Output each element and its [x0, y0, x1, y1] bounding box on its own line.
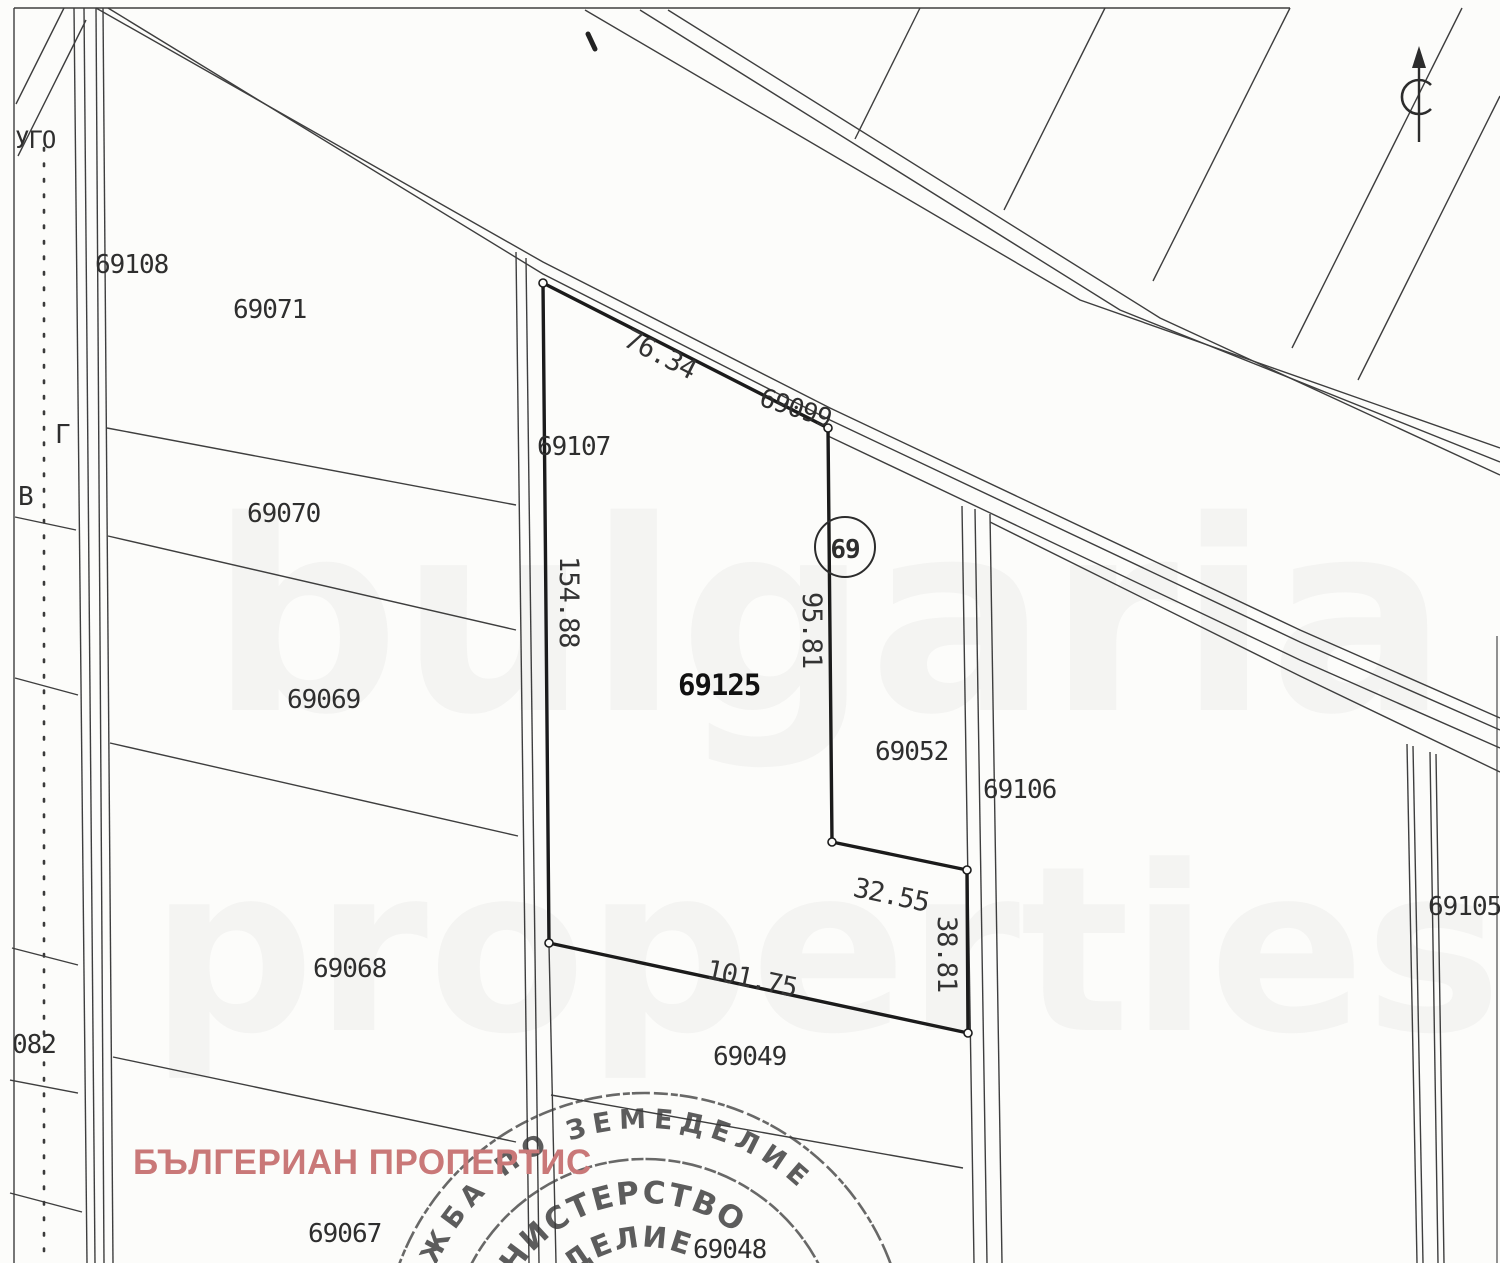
parcel-label-69108: 69108 — [95, 250, 168, 280]
dimension-lowerright-3881: 38.81 — [931, 916, 962, 992]
road-69108-line4 — [103, 8, 113, 1263]
vertex-point-5 — [964, 1029, 972, 1037]
map-canvas: bulgaria properties — [0, 0, 1500, 1263]
parcel-label-69106: 69106 — [983, 775, 1056, 805]
vertex-point-6 — [545, 939, 553, 947]
strip-line-2 — [1004, 8, 1105, 210]
left-strip-boundary-4 — [10, 1080, 78, 1093]
vertex-point-1 — [539, 279, 547, 287]
parcel-label-69071: 69071 — [233, 295, 306, 325]
agency-watermark: БЪЛГЕРИАН ПРОПЕРТИС — [133, 1143, 592, 1182]
strip-line-5 — [1358, 96, 1500, 380]
north-arrow-c-glyph — [1402, 80, 1431, 114]
left-strip-boundary-5 — [10, 1193, 82, 1212]
upper-road-line1 — [585, 10, 1500, 448]
parcel-label-69052: 69052 — [875, 737, 948, 767]
strip-line-1 — [855, 8, 920, 139]
strip-stub-1 — [16, 8, 64, 104]
parcel-label-69125: 69125 — [678, 668, 760, 702]
parcel-label-ugo: УГО — [15, 126, 56, 154]
road-69108-line3 — [96, 8, 104, 1263]
dimension-right-9581: 95.81 — [796, 592, 827, 668]
plot-circle-number: 69 — [830, 535, 859, 565]
parcel-label-69107: 69107 — [537, 432, 610, 462]
strip-line-4 — [1292, 8, 1462, 348]
parcel-label-69070: 69070 — [247, 499, 320, 529]
vertex-point-3 — [828, 838, 836, 846]
parcel-label-69048: 69048 — [693, 1235, 766, 1263]
vertex-point-4 — [963, 866, 971, 874]
parcel-label-69049: 69049 — [713, 1042, 786, 1072]
north-arrow-icon — [1402, 46, 1431, 142]
parcel-label-69105: 69105 — [1428, 892, 1500, 922]
parcel-label-69068: 69068 — [313, 954, 386, 984]
parcel-label-g: Г — [55, 420, 70, 450]
cadastral-map-scan: bulgaria properties — [0, 0, 1500, 1263]
strip-line-3 — [1153, 8, 1290, 281]
background-watermark-line2: properties — [150, 818, 1500, 1085]
parcel-label-b: В — [18, 482, 33, 512]
parcel-label-69069: 69069 — [287, 685, 360, 715]
north-arrow-head — [1412, 46, 1426, 68]
left-strip-boundary-1 — [15, 517, 76, 530]
parcel-label-69067: 69067 — [308, 1219, 381, 1249]
dimension-left-15488: 154.88 — [553, 556, 584, 648]
scan-tick-mark — [588, 34, 595, 49]
left-strip-boundary-2 — [15, 678, 78, 695]
parcel-label-082: 082 — [12, 1030, 56, 1060]
background-watermark: bulgaria properties — [150, 465, 1500, 1085]
left-strip-boundary-3 — [12, 948, 78, 965]
